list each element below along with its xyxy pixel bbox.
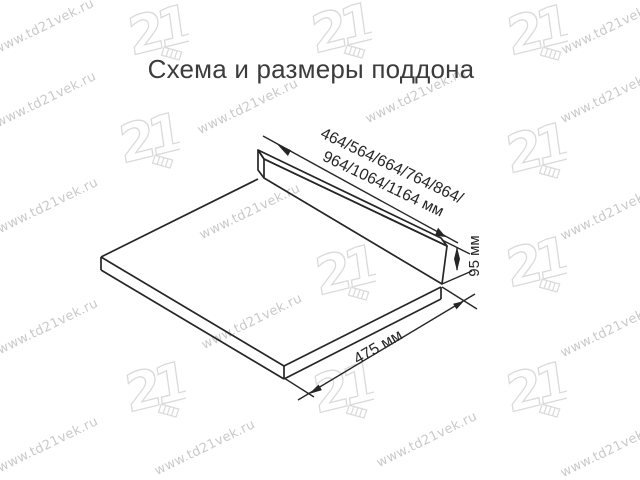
depth-arrowhead-right bbox=[453, 301, 464, 309]
depth-dimension: 475 мм bbox=[284, 287, 477, 400]
depth-dimension-label: 475 мм bbox=[351, 327, 406, 368]
width-dimension: 464/564/664/764/864/ 964/1064/1164 мм bbox=[263, 125, 466, 243]
deck-front-edges bbox=[101, 257, 284, 379]
page-title: Схема и размеры поддона bbox=[0, 54, 622, 85]
height-dimension-label: 95 мм bbox=[466, 235, 483, 276]
depth-arrowhead-left bbox=[309, 385, 322, 395]
screenshot-root: www.td21vek.ruwww.td21vek.ruwww.td21vek.… bbox=[0, 0, 640, 480]
rail-left-end bbox=[258, 150, 264, 178]
width-arrowhead-right bbox=[435, 228, 446, 237]
height-dimension: 95 мм bbox=[442, 235, 483, 284]
width-arrowhead-left bbox=[276, 143, 291, 156]
height-arrowhead-bottom bbox=[454, 259, 460, 271]
deck-back-left-edge bbox=[101, 179, 258, 257]
